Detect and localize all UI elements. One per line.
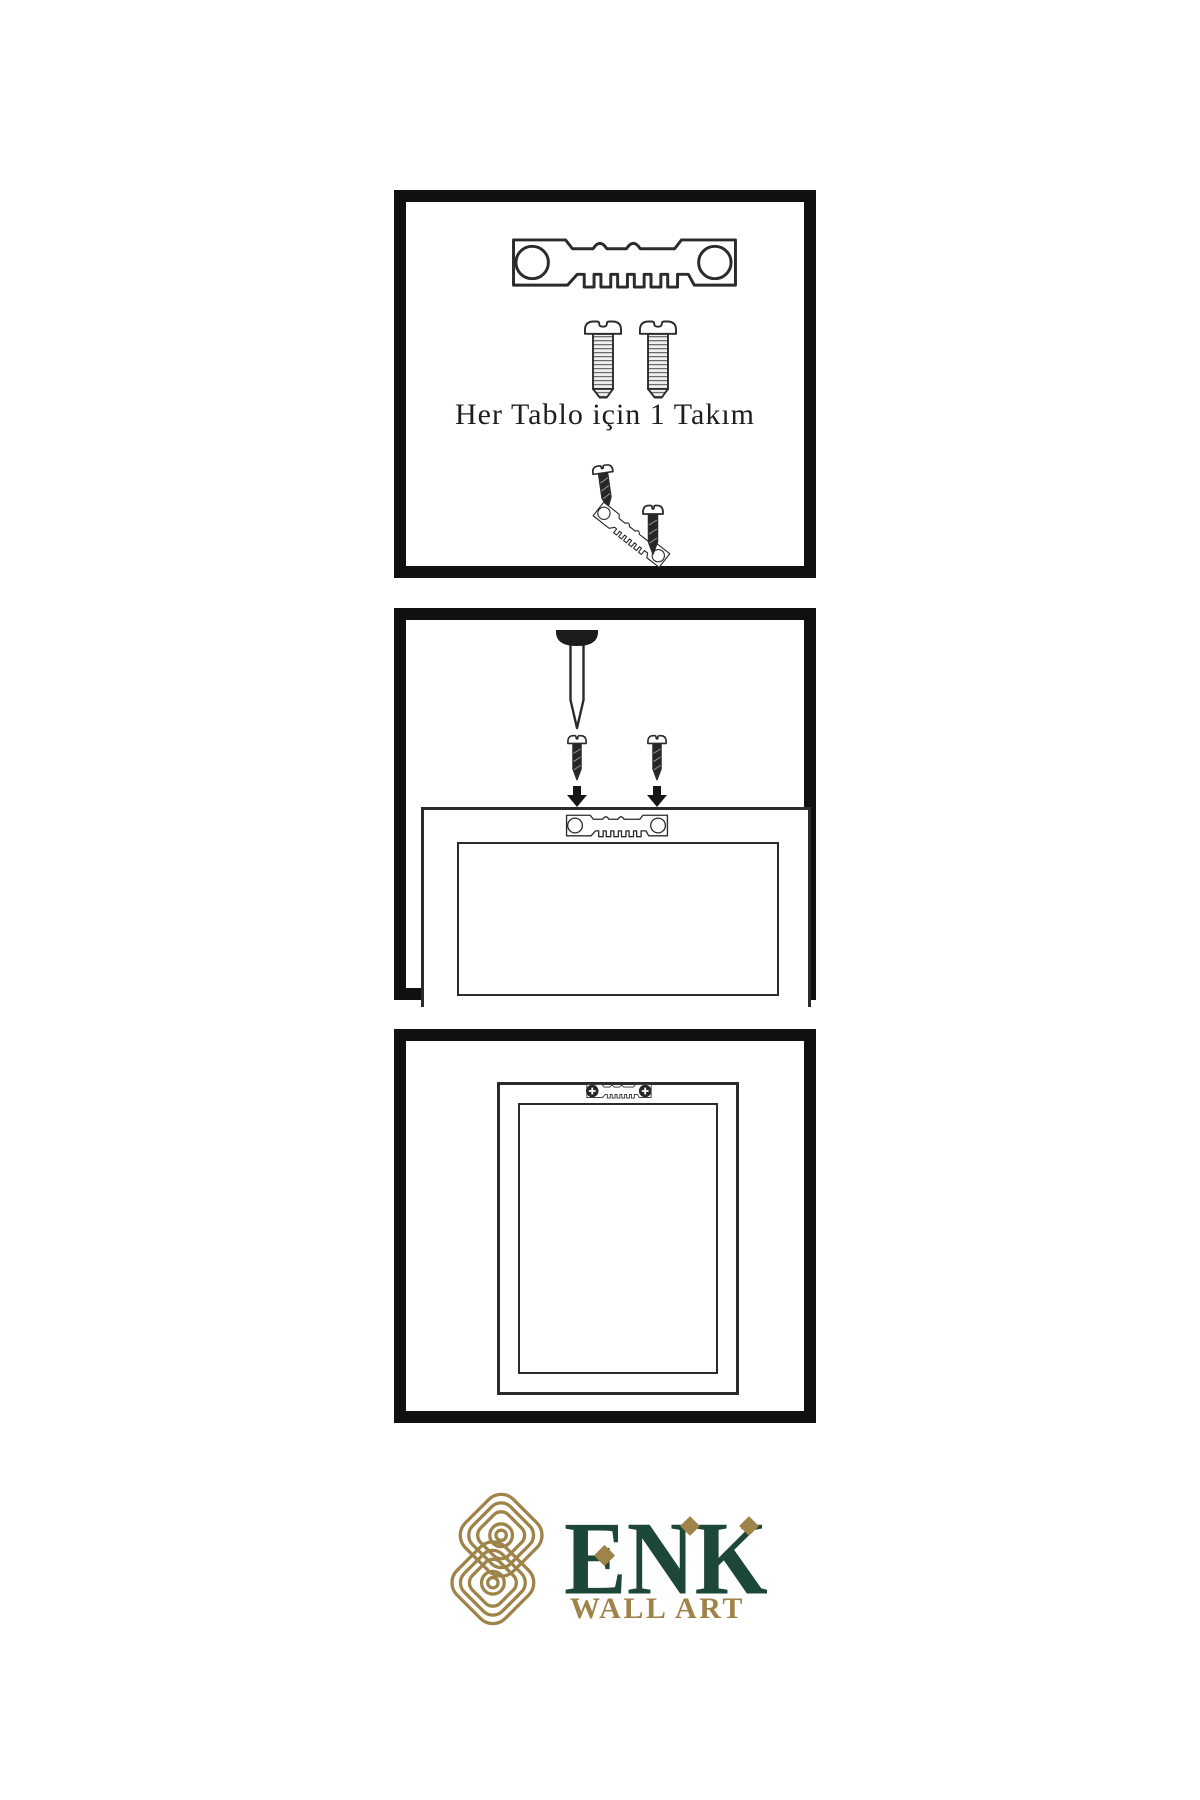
screw-dark-icon [647,734,667,782]
frame-back-inner [457,842,779,996]
panel-hardware-kit: Her Tablo için 1 Takım [394,190,816,578]
arrow-down-icon [647,786,667,807]
arrow-down-icon [567,786,587,807]
kit-caption: Her Tablo için 1 Takım [406,398,804,432]
sawtooth-hanger-icon [565,813,669,838]
frame-back-inner [518,1103,718,1374]
nail-icon [554,630,600,732]
sawtooth-hanger-icon [509,235,740,290]
hanger-assembly-icon [588,458,684,576]
brand-logo: ENK WALL ART [430,1490,790,1640]
screw-threaded-icon [639,319,677,400]
screw-dark-icon [567,734,587,782]
panel-mounting-step [394,608,816,1000]
screw-threaded-icon [584,319,622,400]
brand-tagline: WALL ART [570,1594,745,1624]
knot-monogram-icon [436,1494,558,1624]
panel-finished-step [394,1029,816,1423]
sawtooth-hanger-mounted-icon [586,1083,652,1099]
